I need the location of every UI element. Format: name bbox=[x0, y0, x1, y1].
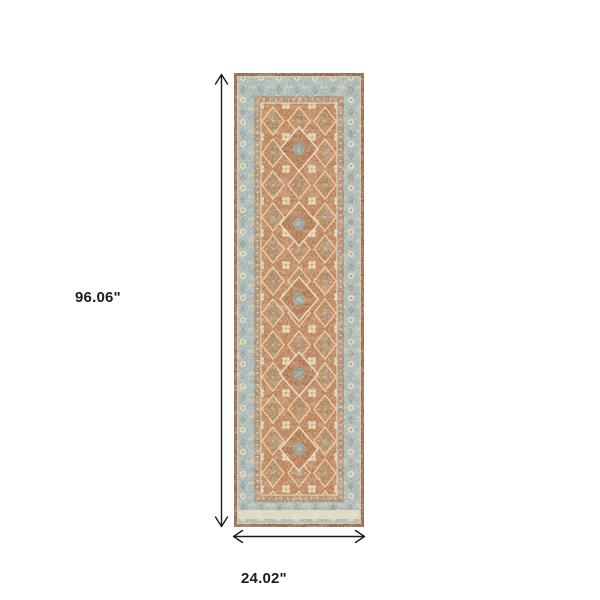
height-dimension-arrow bbox=[216, 75, 228, 527]
product-image-canvas: 96.06" 24.02" bbox=[0, 0, 600, 600]
rug-fade-texture bbox=[234, 73, 364, 527]
height-dimension-label: 96.06" bbox=[75, 289, 121, 306]
rug-illustration bbox=[234, 73, 364, 527]
width-dimension-label: 24.02" bbox=[241, 570, 287, 587]
width-dimension-arrow bbox=[234, 531, 365, 543]
rug-product-image bbox=[234, 73, 364, 527]
